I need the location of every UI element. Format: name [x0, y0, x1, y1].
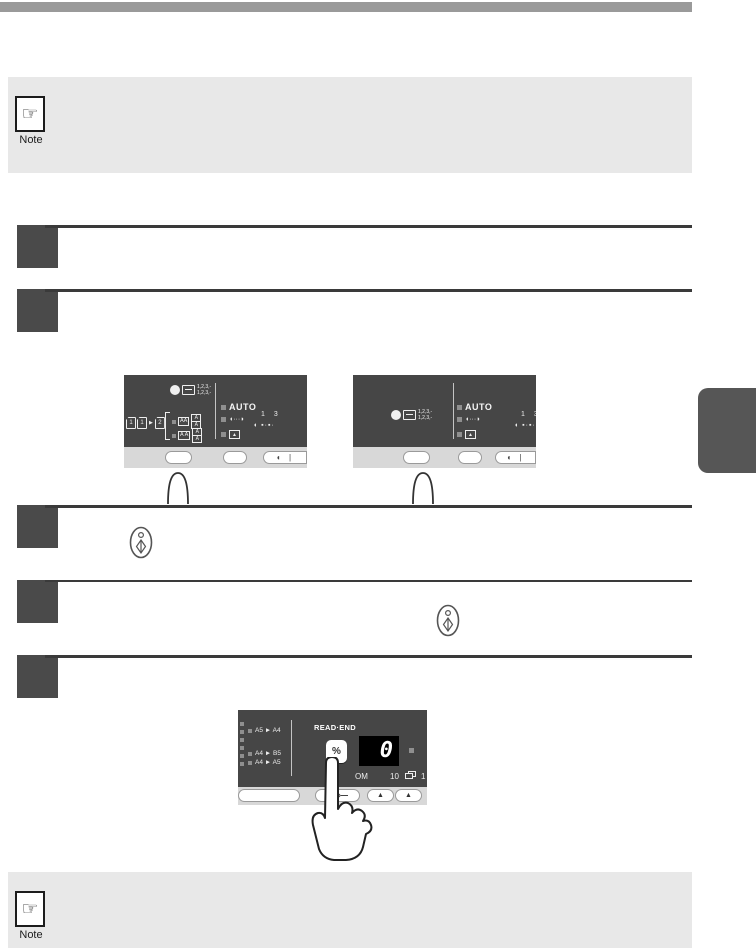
partial-key — [238, 789, 300, 802]
panel-key-strip: ◖ | — [124, 447, 307, 468]
density-numbers: 1 3 — [261, 411, 278, 418]
led-indicator — [221, 417, 226, 422]
led-indicator — [457, 432, 462, 437]
sort-copies-icon: 1,2,3,- 1,2,3,- — [170, 384, 211, 396]
panel-divider — [291, 720, 292, 776]
page-icon: 1 — [126, 417, 136, 429]
note-label: Note — [6, 929, 56, 941]
step-4-box — [17, 580, 58, 623]
led-indicator — [248, 752, 252, 756]
pointing-hand-icon: ☞ — [15, 96, 45, 132]
sort-circle-icon — [170, 385, 180, 395]
copies-icon — [405, 771, 416, 780]
step-3-box — [17, 505, 58, 548]
copy-tray-icon — [182, 385, 195, 395]
mode-stack-icon: A A — [191, 414, 201, 429]
note-box-bottom: ☞ Note — [8, 872, 692, 948]
note-box-top: ☞ Note — [8, 77, 692, 173]
panel-divider — [453, 383, 454, 439]
led-indicator — [172, 434, 176, 438]
led-indicator — [457, 417, 462, 422]
photo-indicator-row: ▲ — [221, 430, 240, 439]
mode-stack-icon: A A — [192, 428, 202, 443]
density-scale-icon: ◖ ▪·▪· — [253, 422, 275, 429]
page-icon: 1 — [137, 417, 147, 429]
ratio-label: A5 ► A4 — [255, 727, 281, 734]
auto-indicator-row: AUTO — [221, 402, 256, 412]
led-indicator — [457, 405, 462, 410]
copy-mode-row-2: A A A A — [172, 428, 202, 443]
panel-key-strip: ◖ | — [353, 447, 536, 468]
panel-dark-area: 1,2,3,- 1,2,3,- AUTO ◖···◗ ▲ 1 3 ◖ ▪·▪ — [353, 375, 536, 447]
sort-circle-icon — [391, 410, 401, 420]
led-indicator — [248, 729, 252, 733]
ratio-label: A4 ► A5 — [255, 759, 281, 766]
auto-indicator-row: AUTO — [457, 402, 492, 412]
exposure-icon: ◖···◗ — [229, 416, 244, 423]
original-pages-icons: 1 1 ▶ 2 — [126, 417, 165, 429]
page-icon: 2 — [155, 417, 165, 429]
led-indicator — [409, 748, 414, 753]
photo-mode-icon: ▲ — [465, 430, 476, 439]
ratio-preset-row: A5 ► A4 — [248, 727, 281, 734]
chapter-tab — [698, 388, 756, 473]
ratio-preset-row: A4 ► B5 — [248, 750, 281, 757]
manual-page: ☞ Note — [0, 0, 756, 948]
exposure-display-key: ◖ | — [495, 451, 536, 464]
exposure-display-key: ◖ | — [263, 451, 307, 464]
start-key-icon — [436, 604, 460, 637]
copy-tray-icon — [403, 410, 416, 420]
pointing-finger-icon — [161, 460, 195, 504]
page-header-bar — [0, 2, 692, 12]
step-1-rule — [45, 225, 692, 228]
count-range-left: 10 — [390, 772, 399, 781]
led-column — [240, 722, 244, 766]
sort-label-2: 1,2,3,- — [197, 390, 211, 396]
step-5-rule — [45, 655, 692, 658]
panel-divider — [215, 383, 216, 439]
bracket-icon — [165, 412, 170, 440]
ratio-label: A4 ► B5 — [255, 750, 281, 757]
pressing-hand-icon — [296, 757, 382, 862]
arrow-icon: ▶ — [149, 420, 153, 426]
mode-icon: A A — [178, 431, 190, 440]
step-2-rule — [45, 289, 692, 292]
step-2-box — [17, 289, 58, 332]
exposure-indicator-row: ◖···◗ — [457, 416, 480, 423]
led-indicator — [248, 761, 252, 765]
exposure-mode-key — [223, 451, 247, 464]
count-range-right: 1 — [421, 772, 425, 781]
photo-mode-icon: ▲ — [229, 430, 240, 439]
mode-icon: AA — [178, 417, 189, 426]
copy-mode-row-1: AA A A — [172, 414, 201, 429]
led-indicator — [221, 405, 226, 410]
read-end-label: READ·END — [314, 723, 356, 732]
quantity-up-key: ▲ — [395, 789, 422, 802]
photo-indicator-row: ▲ — [457, 430, 476, 439]
step-1-box — [17, 225, 58, 268]
density-numbers: 1 3 — [521, 411, 536, 418]
start-key-icon — [129, 526, 153, 559]
pointing-finger-icon — [406, 460, 440, 504]
density-scale-icon: ◖ ▪·▪· — [514, 422, 536, 429]
exposure-icon: ◖···◗ — [465, 416, 480, 423]
control-panel-illustration-left: 1,2,3,- 1,2,3,- 1 1 ▶ 2 AA A A — [124, 375, 307, 468]
exposure-mode-key — [458, 451, 482, 464]
step-5-box — [17, 655, 58, 698]
note-label: Note — [6, 134, 56, 146]
step-4-rule — [45, 580, 692, 582]
led-indicator — [172, 420, 176, 424]
control-panel-illustration-right: 1,2,3,- 1,2,3,- AUTO ◖···◗ ▲ 1 3 ◖ ▪·▪ — [353, 375, 536, 468]
panel-dark-area: 1,2,3,- 1,2,3,- 1 1 ▶ 2 AA A A — [124, 375, 307, 447]
exposure-indicator-row: ◖···◗ — [221, 416, 244, 423]
sort-copies-icon: 1,2,3,- 1,2,3,- — [391, 409, 432, 421]
led-indicator — [221, 432, 226, 437]
step-3-rule — [45, 505, 692, 508]
sort-label-2: 1,2,3,- — [418, 415, 432, 421]
auto-label: AUTO — [229, 402, 256, 412]
pointing-hand-icon: ☞ — [15, 891, 45, 927]
ratio-preset-row: A4 ► A5 — [248, 759, 281, 766]
auto-label: AUTO — [465, 402, 492, 412]
